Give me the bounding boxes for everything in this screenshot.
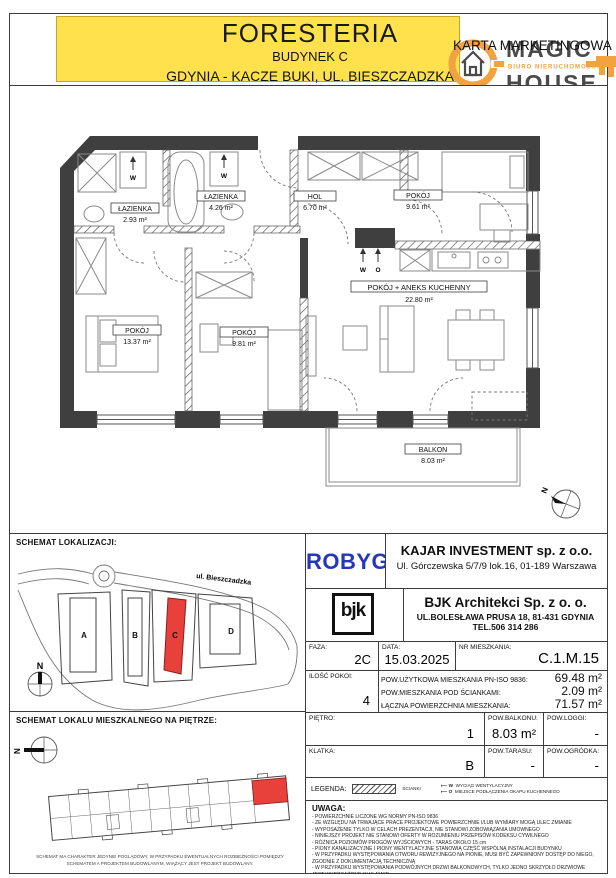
bjk-logo: bjk	[332, 593, 374, 635]
floor-plan-drawing: W W W O ŁAZIENKA 2.93 m² ŁAZIENKA 4.26 m…	[10, 86, 607, 533]
nr-value: C.1.M.15	[538, 650, 599, 667]
location-map-panel: SCHEMAT LOKALIZACJI: ul. Bieszczadzka	[9, 533, 306, 712]
ogrodek-value: -	[595, 758, 599, 773]
room-label-bathroom2: ŁAZIENKA	[204, 194, 238, 201]
info-table: ROBYG KAJAR INVESTMENT sp. z o.o. Ul. Gó…	[305, 533, 608, 874]
room-label-bedroom2: POKÓJ	[125, 326, 149, 335]
svg-text:W: W	[130, 175, 137, 182]
klatka-cell: KLATKA: B	[306, 746, 485, 778]
svg-text:B: B	[132, 631, 138, 640]
legend-cell: LEGENDA: ŚCIANKI ⟵ W WYCIĄG WENTYLACYJNY…	[306, 778, 607, 801]
svg-text:C: C	[172, 631, 178, 640]
robyg-logo: ROBYG	[306, 549, 385, 575]
location-map-drawing: ul. Bieszczadzka A B C D	[10, 548, 305, 711]
card-type-label: KARTA MARKETINGOWA	[453, 38, 612, 53]
building-labels: A B C D	[81, 627, 234, 640]
legend-walls: ŚCIANKI	[402, 786, 420, 792]
north-compass-icon: N	[540, 486, 580, 518]
house-icon	[462, 52, 484, 75]
balcony-outline	[326, 428, 520, 486]
schematic-caption: SCHEMAT MA CHARAKTER JEDYNIE POGLĄDOWY, …	[36, 852, 284, 866]
svg-text:N: N	[13, 748, 22, 754]
room-label-balcony: BALKON	[419, 447, 447, 454]
developer-company: KAJAR INVESTMENT sp. z o.o.	[386, 543, 607, 558]
data-cell: DATA: 15.03.2025	[379, 642, 456, 671]
walls-hatch-swatch	[352, 784, 396, 794]
schematic-compass-icon: N	[13, 737, 57, 763]
svg-text:A: A	[81, 631, 87, 640]
legend-label: LEGENDA:	[311, 786, 346, 793]
architect-address: UL.BOLESŁAWA PRUSA 18, 81-431 GDYNIA	[404, 612, 607, 622]
svg-text:SCHEMATEM A PROJEKTEM BUDOWLAN: SCHEMATEM A PROJEKTEM BUDOWLANYM, WIĄŻĄC…	[67, 860, 254, 866]
uwaga-cell: UWAGA: - POWIERZCHNIE LICZONE WG NORMY P…	[306, 801, 607, 873]
marketing-card-page: FORESTERIA BUDYNEK C GDYNIA - KACZE BUKI…	[0, 0, 616, 878]
klatka-value: B	[465, 758, 474, 773]
header: FORESTERIA BUDYNEK C GDYNIA - KACZE BUKI…	[9, 13, 608, 86]
areas-cell: POW.UŻYTKOWA MIESZKANIA PN-ISO 9836:69.4…	[379, 671, 607, 713]
taras-value: -	[531, 758, 535, 773]
svg-text:2.93 m²: 2.93 m²	[123, 217, 147, 224]
street-label: ul. Bieszczadzka	[196, 573, 252, 587]
floor-schematic-drawing: N	[10, 728, 305, 873]
legend-symbols: ⟵ W WYCIĄG WENTYLACYJNY ⟵ O MIEJSCE PODŁ…	[441, 783, 560, 795]
uwaga-label: UWAGA:	[312, 804, 601, 813]
developer-logo-cell: ROBYG	[306, 534, 386, 589]
pokoje-value: 4	[363, 693, 370, 708]
svg-text:W: W	[360, 267, 367, 274]
balkon-cell: POW.BALKONU: 8.03 m²	[485, 713, 544, 746]
floor-plan-panel: W W W O ŁAZIENKA 2.93 m² ŁAZIENKA 4.26 m…	[9, 85, 608, 534]
architect-phone: TEL.506 314 286	[404, 622, 607, 632]
architect-company: BJK Architekci Sp. z o. o.	[404, 595, 607, 610]
svg-text:8.03 m²: 8.03 m²	[421, 458, 445, 465]
nr-mieszkania-cell: NR MIESZKANIA: C.1.M.15	[456, 642, 607, 671]
svg-text:O: O	[375, 267, 380, 274]
faza-cell: FAZA: 2C	[306, 642, 379, 671]
svg-text:6.70 m²: 6.70 m²	[303, 205, 327, 212]
architect-logo-cell: bjk	[306, 589, 404, 642]
ilosc-pokoi-cell: ILOŚĆ POKOI: 4	[306, 671, 379, 713]
svg-text:SCHEMAT MA CHARAKTER JEDYNIE P: SCHEMAT MA CHARAKTER JEDYNIE POGLĄDOWY, …	[36, 852, 284, 859]
building-strip	[48, 772, 290, 845]
room-label-bedroom3: POKÓJ	[232, 328, 256, 337]
area-row: ŁĄCZNA POWIERZCHNIA MIESZKANIA:71.57 m²	[379, 697, 607, 710]
developer-cell: KAJAR INVESTMENT sp. z o.o. Ul. Górczews…	[386, 534, 607, 589]
svg-text:22.80 m²: 22.80 m²	[405, 297, 433, 304]
area-row: POW.UŻYTKOWA MIESZKANIA PN-ISO 9836:69.4…	[379, 671, 607, 684]
svg-text:13.37 m²: 13.37 m²	[123, 339, 151, 346]
svg-text:9.61 m²: 9.61 m²	[406, 204, 430, 211]
highlighted-unit	[252, 778, 288, 805]
svg-text:D: D	[228, 627, 234, 636]
developer-address: Ul. Górczewska 5/7/9 lok.16, 01-189 Wars…	[386, 561, 607, 572]
data-value: 15.03.2025	[379, 652, 455, 667]
taras-cell: POW.TARASU: -	[485, 746, 544, 778]
ogrodek-cell: POW.OGRÓDKA: -	[544, 746, 607, 778]
floor-schematic-title: SCHEMAT LOKALU MIESZKALNEGO NA PIĘTRZE:	[16, 716, 217, 725]
architect-cell: BJK Architekci Sp. z o. o. UL.BOLESŁAWA …	[404, 589, 607, 642]
balkon-value: 8.03 m²	[485, 726, 543, 741]
buildings	[58, 590, 256, 686]
svg-text:9.81 m²: 9.81 m²	[232, 341, 256, 348]
room-label-bedroom1: POKÓJ	[406, 191, 430, 200]
room-label-hall: HOL	[308, 194, 323, 201]
loggia-cell: POW.LOGGI: -	[544, 713, 607, 746]
svg-text:N: N	[540, 486, 551, 495]
area-row: POW.MIESZKANIA POD ŚCIANKAMI:2.09 m²	[379, 684, 607, 697]
room-label-bathroom1: ŁAZIENKA	[118, 206, 152, 213]
faza-value: 2C	[354, 652, 371, 667]
svg-text:W: W	[221, 173, 228, 180]
room-label-living-kitchen: POKÓJ + ANEKS KUCHENNY	[367, 283, 470, 292]
pietro-cell: PIĘTRO: 1	[306, 713, 485, 746]
map-compass-icon: N	[28, 661, 52, 696]
floor-schematic-panel: SCHEMAT LOKALU MIESZKALNEGO NA PIĘTRZE: …	[9, 711, 306, 874]
loggia-value: -	[595, 726, 599, 741]
svg-text:N: N	[37, 661, 44, 671]
location-map-title: SCHEMAT LOKALIZACJI:	[16, 538, 117, 547]
svg-text:4.26 m²: 4.26 m²	[209, 205, 233, 212]
pietro-value: 1	[467, 726, 474, 741]
